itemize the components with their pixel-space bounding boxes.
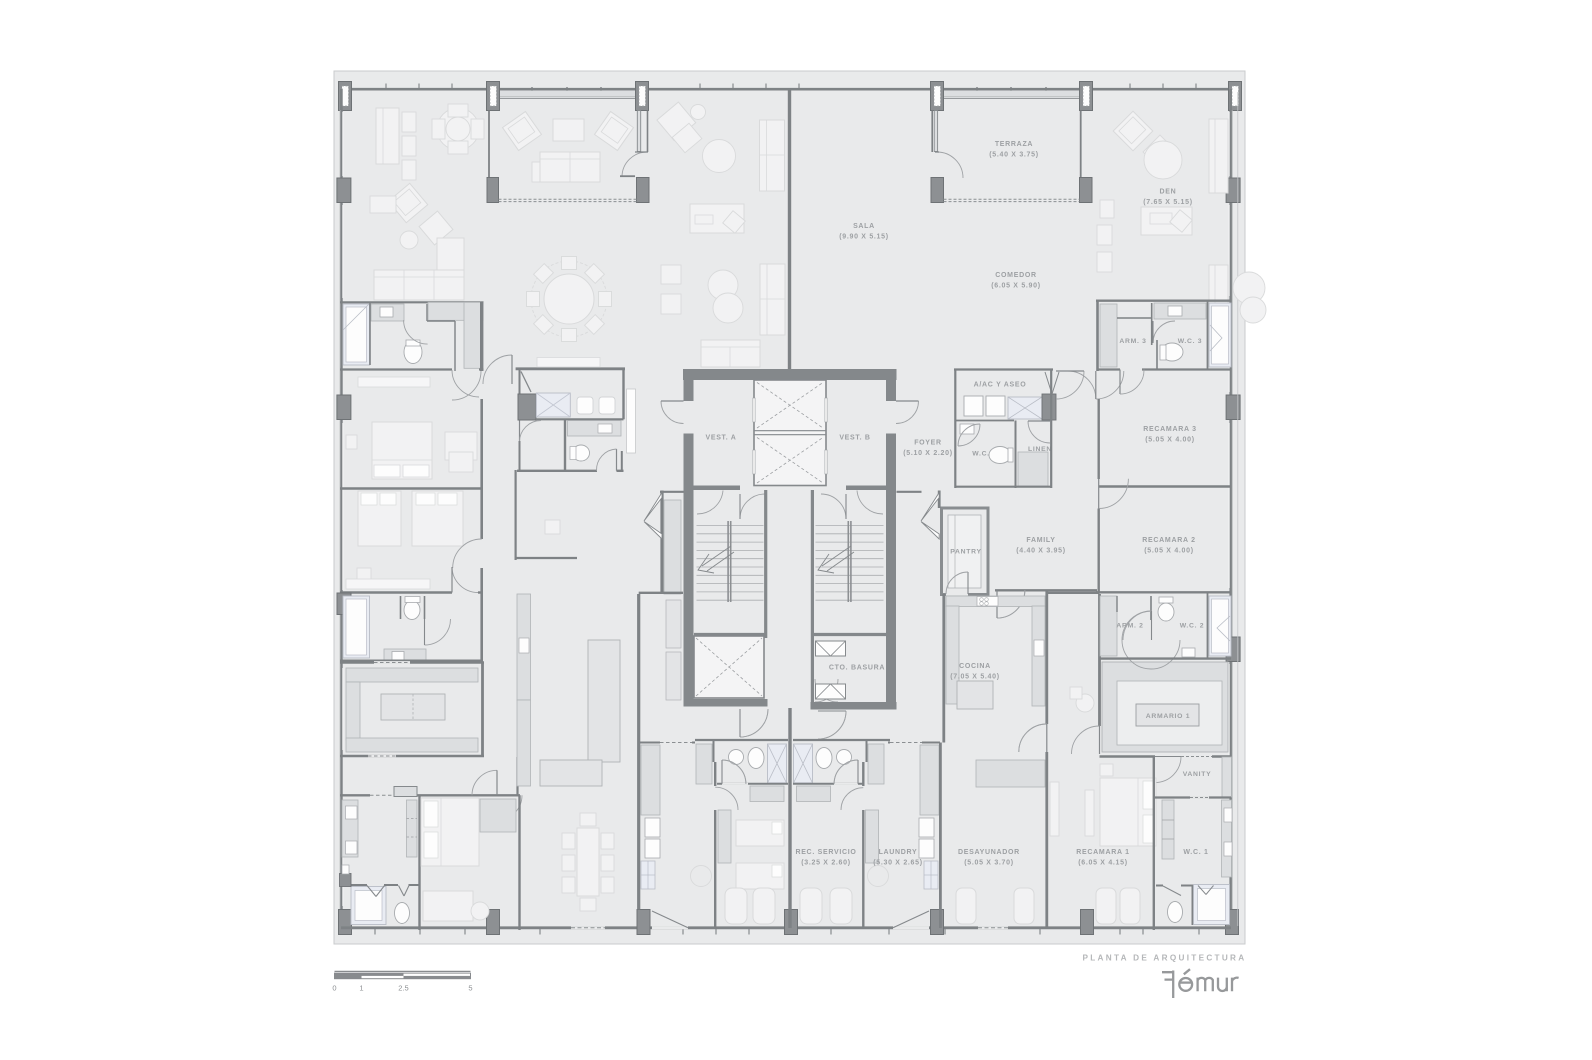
svg-text:COCINA: COCINA bbox=[959, 663, 991, 670]
svg-text:W.C. 3: W.C. 3 bbox=[1178, 338, 1203, 345]
svg-text:PLANTA DE ARQUITECTURA: PLANTA DE ARQUITECTURA bbox=[1082, 954, 1246, 963]
svg-text:LINEN: LINEN bbox=[1028, 446, 1052, 453]
svg-text:TERRAZA: TERRAZA bbox=[995, 141, 1033, 148]
svg-text:COMEDOR: COMEDOR bbox=[995, 272, 1036, 279]
svg-text:(3.25 X 2.60): (3.25 X 2.60) bbox=[801, 860, 851, 867]
svg-text:(5.30 X 2.65): (5.30 X 2.65) bbox=[873, 860, 923, 867]
svg-text:2.5: 2.5 bbox=[398, 984, 408, 993]
svg-text:FOYER: FOYER bbox=[914, 440, 942, 447]
svg-text:(7.05 X 5.40): (7.05 X 5.40) bbox=[950, 674, 1000, 681]
svg-text:(5.10 X 2.20): (5.10 X 2.20) bbox=[903, 450, 953, 457]
svg-text:RECAMARA 2: RECAMARA 2 bbox=[1142, 537, 1195, 544]
svg-text:(5.05 X 3.70): (5.05 X 3.70) bbox=[964, 860, 1014, 867]
svg-text:(5.40 X 3.75): (5.40 X 3.75) bbox=[989, 152, 1039, 159]
svg-text:(9.90 X 5.15): (9.90 X 5.15) bbox=[839, 234, 889, 241]
svg-text:FAMILY: FAMILY bbox=[1026, 537, 1055, 544]
svg-text:0: 0 bbox=[332, 984, 336, 993]
svg-text:VANITY: VANITY bbox=[1183, 771, 1212, 778]
svg-text:(6.05 X 5.90): (6.05 X 5.90) bbox=[991, 283, 1041, 290]
svg-text:(4.40 X 3.95): (4.40 X 3.95) bbox=[1016, 548, 1066, 555]
svg-text:A/AC Y ASEO: A/AC Y ASEO bbox=[974, 382, 1027, 389]
svg-text:(5.05 X 4.00): (5.05 X 4.00) bbox=[1144, 548, 1194, 555]
svg-text:1: 1 bbox=[359, 984, 363, 993]
svg-text:RECAMARA 1: RECAMARA 1 bbox=[1076, 849, 1129, 856]
svg-text:(5.05 X 4.00): (5.05 X 4.00) bbox=[1145, 437, 1195, 444]
svg-text:(6.05 X 4.15): (6.05 X 4.15) bbox=[1078, 860, 1128, 867]
svg-text:ARM. 3: ARM. 3 bbox=[1119, 338, 1146, 345]
svg-text:REC. SERVICIO: REC. SERVICIO bbox=[795, 849, 856, 856]
svg-text:DESAYUNADOR: DESAYUNADOR bbox=[958, 849, 1020, 856]
svg-text:W.C.: W.C. bbox=[972, 451, 990, 458]
svg-text:W.C. 1: W.C. 1 bbox=[1183, 849, 1208, 856]
svg-text:CTO. BASURA: CTO. BASURA bbox=[829, 665, 885, 672]
svg-text:ARMARIO 1: ARMARIO 1 bbox=[1146, 713, 1190, 720]
svg-text:(7.65 X 5.15): (7.65 X 5.15) bbox=[1143, 199, 1193, 206]
svg-text:VEST. B: VEST. B bbox=[839, 435, 870, 442]
svg-text:5: 5 bbox=[468, 984, 472, 993]
svg-text:RECAMARA 3: RECAMARA 3 bbox=[1143, 426, 1196, 433]
svg-text:VEST. A: VEST. A bbox=[705, 435, 736, 442]
svg-text:W.C. 2: W.C. 2 bbox=[1180, 623, 1205, 630]
svg-text:DEN: DEN bbox=[1160, 189, 1177, 196]
svg-text:ARM. 2: ARM. 2 bbox=[1116, 623, 1143, 630]
svg-text:PANTRY: PANTRY bbox=[950, 549, 981, 556]
svg-text:LAUNDRY: LAUNDRY bbox=[879, 849, 918, 856]
svg-text:SALA: SALA bbox=[853, 223, 875, 230]
